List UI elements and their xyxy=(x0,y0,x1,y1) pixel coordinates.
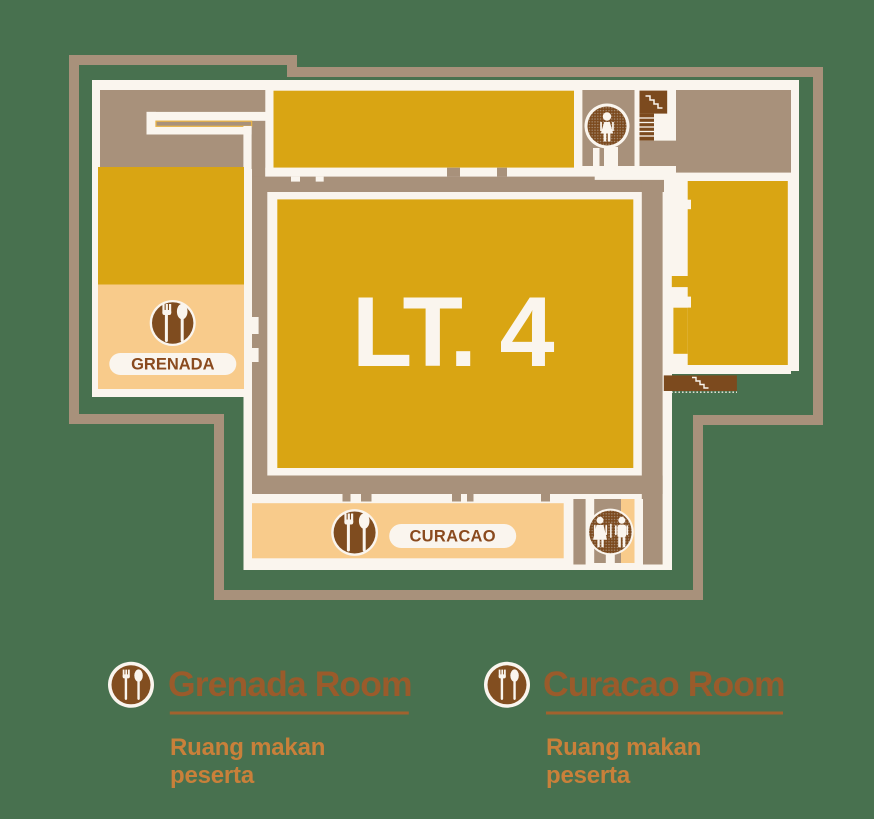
svg-text:Ruang makan: Ruang makan xyxy=(170,734,325,761)
svg-text:peserta: peserta xyxy=(170,762,255,789)
svg-text:Curacao Room: Curacao Room xyxy=(543,664,785,704)
svg-text:LT. 4: LT. 4 xyxy=(352,276,555,387)
svg-text:GRENADA: GRENADA xyxy=(131,356,215,374)
svg-text:peserta: peserta xyxy=(546,762,631,789)
svg-text:CURACAO: CURACAO xyxy=(409,528,495,546)
svg-text:Grenada Room: Grenada Room xyxy=(168,664,412,704)
svg-text:Ruang makan: Ruang makan xyxy=(546,734,701,761)
